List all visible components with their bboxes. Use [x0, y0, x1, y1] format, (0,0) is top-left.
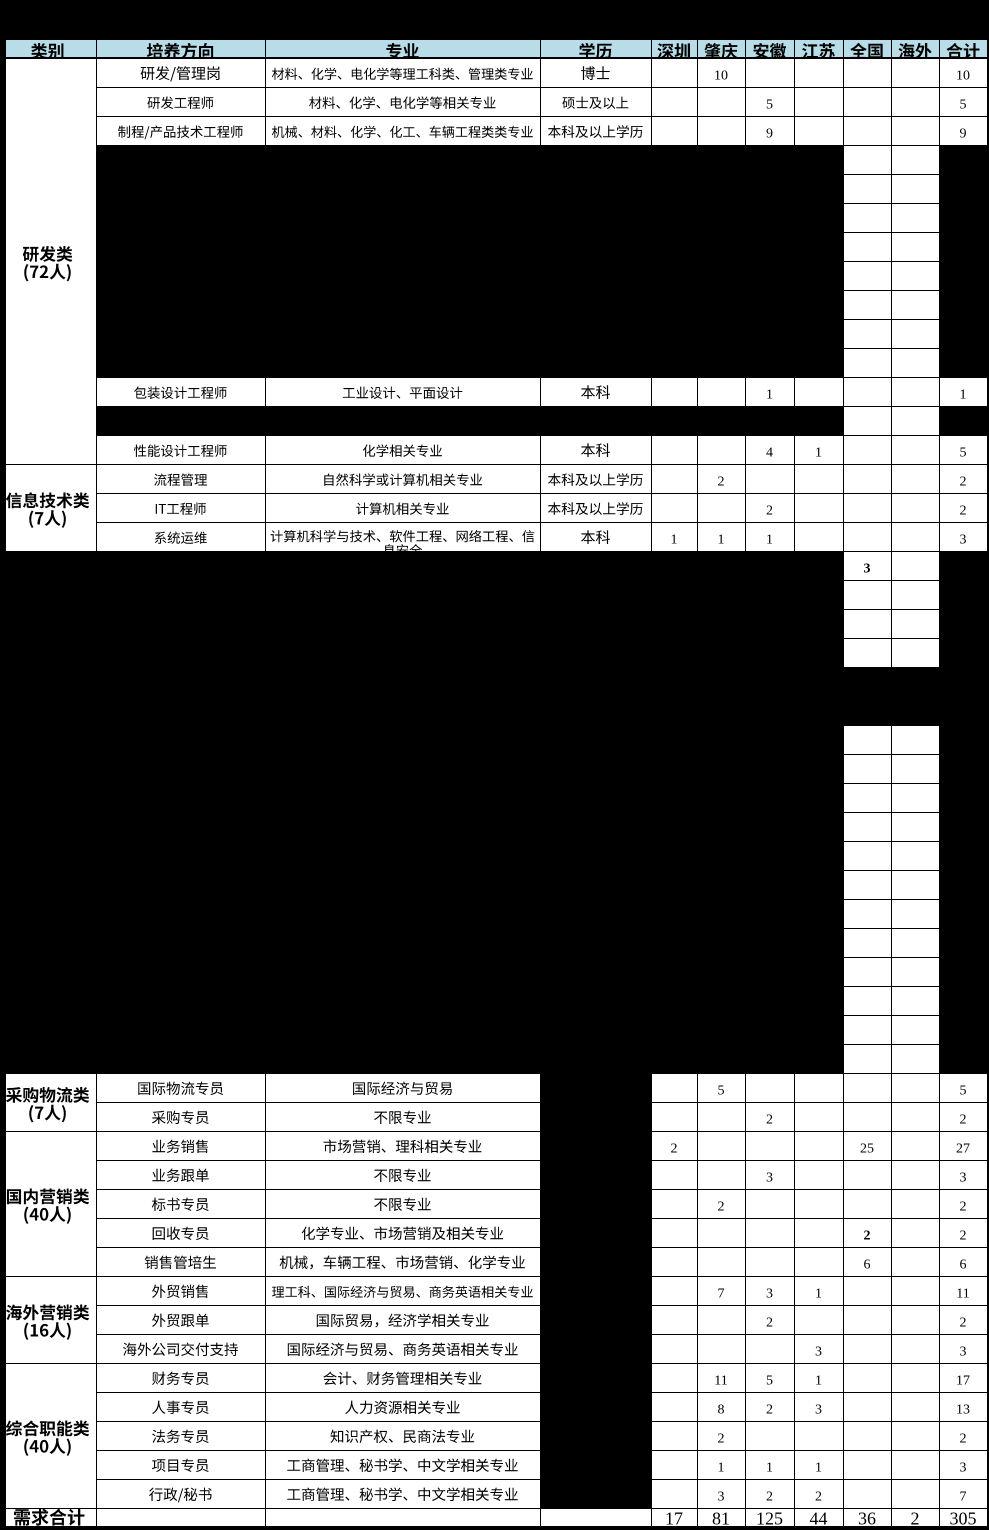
svg-text:1: 1: [815, 1287, 822, 1302]
svg-text:10: 10: [714, 69, 728, 84]
svg-text:2: 2: [911, 1509, 920, 1529]
svg-text:5: 5: [766, 1374, 773, 1389]
svg-text:4: 4: [766, 446, 773, 461]
svg-text:1: 1: [766, 1461, 773, 1476]
svg-text:1: 1: [671, 533, 678, 548]
svg-text:11: 11: [956, 1287, 969, 1302]
svg-text:2: 2: [960, 504, 967, 519]
svg-text:6: 6: [864, 1258, 871, 1273]
svg-text:27: 27: [956, 1142, 970, 1157]
svg-text:2: 2: [960, 1229, 967, 1244]
svg-text:2: 2: [718, 1200, 725, 1215]
svg-text:7: 7: [718, 1287, 725, 1302]
svg-text:2: 2: [960, 1432, 967, 1447]
svg-text:11: 11: [714, 1374, 727, 1389]
svg-text:2: 2: [960, 1200, 967, 1215]
svg-text:2: 2: [815, 1490, 822, 1505]
svg-text:5: 5: [960, 446, 967, 461]
svg-text:1: 1: [960, 388, 967, 403]
svg-text:2: 2: [960, 475, 967, 490]
svg-text:1: 1: [815, 1461, 822, 1476]
svg-text:2: 2: [766, 504, 773, 519]
svg-text:3: 3: [960, 1345, 967, 1360]
svg-text:3: 3: [815, 1403, 822, 1418]
svg-text:9: 9: [766, 127, 773, 142]
svg-text:5: 5: [960, 98, 967, 113]
svg-text:3: 3: [960, 1461, 967, 1476]
svg-text:5: 5: [766, 98, 773, 113]
svg-text:3: 3: [766, 1171, 773, 1186]
svg-text:7: 7: [960, 1490, 967, 1505]
svg-text:17: 17: [956, 1374, 970, 1389]
svg-text:2: 2: [718, 475, 725, 490]
svg-text:1: 1: [718, 533, 725, 548]
svg-text:10: 10: [956, 69, 970, 84]
svg-text:36: 36: [858, 1509, 876, 1529]
svg-text:2: 2: [766, 1403, 773, 1418]
svg-text:2: 2: [766, 1490, 773, 1505]
svg-text:13: 13: [956, 1403, 970, 1418]
svg-text:5: 5: [960, 1084, 967, 1099]
svg-text:9: 9: [960, 127, 967, 142]
svg-text:3: 3: [766, 1287, 773, 1302]
svg-text:6: 6: [960, 1258, 967, 1273]
svg-text:2: 2: [766, 1113, 773, 1128]
svg-text:5: 5: [718, 1084, 725, 1099]
svg-text:2: 2: [960, 1113, 967, 1128]
svg-text:3: 3: [864, 562, 871, 577]
svg-text:81: 81: [712, 1509, 730, 1529]
svg-text:25: 25: [860, 1142, 874, 1157]
svg-text:17: 17: [665, 1509, 683, 1529]
svg-text:125: 125: [756, 1509, 783, 1529]
svg-text:8: 8: [718, 1403, 725, 1418]
svg-text:1: 1: [766, 533, 773, 548]
svg-text:2: 2: [960, 1316, 967, 1331]
svg-text:3: 3: [815, 1345, 822, 1360]
svg-text:3: 3: [718, 1490, 725, 1505]
svg-text:3: 3: [960, 1171, 967, 1186]
svg-text:2: 2: [671, 1142, 678, 1157]
svg-text:1: 1: [718, 1461, 725, 1476]
svg-text:305: 305: [950, 1509, 977, 1529]
svg-text:1: 1: [815, 446, 822, 461]
svg-text:2: 2: [864, 1229, 871, 1244]
svg-text:1: 1: [766, 388, 773, 403]
svg-text:2: 2: [766, 1316, 773, 1331]
svg-text:1: 1: [815, 1374, 822, 1389]
svg-text:2: 2: [718, 1432, 725, 1447]
svg-text:3: 3: [960, 533, 967, 548]
svg-text:44: 44: [810, 1509, 828, 1529]
